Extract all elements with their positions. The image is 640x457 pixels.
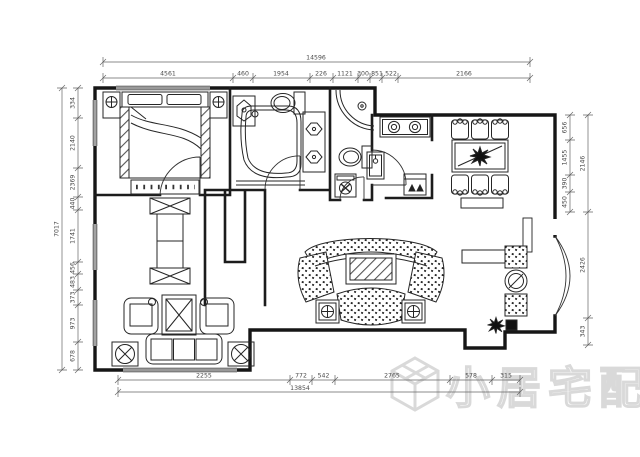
dim-label: 2765 <box>384 373 400 380</box>
dim-label: 1121 <box>337 71 353 78</box>
shower-head <box>358 102 366 110</box>
dim-label: 1741 <box>70 228 77 244</box>
bay-window-seating <box>488 246 528 334</box>
pillow <box>128 95 162 105</box>
wardrobe <box>150 198 190 284</box>
floor-plan-canvas: 小居宅配 <box>0 0 640 457</box>
bedroom-door-arc <box>160 157 200 195</box>
bottom-window <box>123 367 237 373</box>
armchair-left <box>124 298 158 334</box>
bathroom-1 <box>233 92 325 185</box>
dim-label: 678 <box>70 350 77 362</box>
bay-window <box>555 236 570 316</box>
dim-label: 1455 <box>562 150 569 166</box>
dim-label: 2166 <box>456 71 472 78</box>
dim-label: 315 <box>500 373 512 380</box>
dining-chairs-bottom <box>452 175 509 195</box>
dim-label: 2369 <box>70 175 77 191</box>
dimensions-right: 656 1455 390 450 2146 2426 343 <box>562 112 594 348</box>
basin <box>306 151 322 163</box>
dim-label: 772 <box>295 373 307 380</box>
dim-label: 13854 <box>290 385 310 392</box>
dimensions-left: 334 2140 2369 440 1741 456 483 373 973 6… <box>54 85 84 373</box>
bed-group <box>103 92 227 194</box>
dim-label: 7017 <box>54 221 61 237</box>
planter <box>506 320 517 330</box>
dim-label: 226 <box>315 71 327 78</box>
dim-label: 2426 <box>580 257 587 273</box>
dim-label: 14596 <box>306 55 326 62</box>
stool <box>505 294 527 316</box>
dim-label: 542 <box>318 373 330 380</box>
dim-label: 390 <box>562 178 569 190</box>
floor-plant <box>488 317 505 333</box>
dim-label: 440 <box>70 198 77 210</box>
bed <box>120 107 210 178</box>
dim-label: 483 <box>70 276 77 288</box>
dim-label: 2255 <box>196 373 212 380</box>
dim-label: 450 <box>562 196 569 208</box>
cube-logo-icon <box>392 358 438 410</box>
dining-chairs-top <box>452 119 509 139</box>
dim-label: 456 <box>70 262 77 274</box>
corner-shower <box>336 90 374 130</box>
dim-label: 1954 <box>273 71 289 78</box>
bathroom-2 <box>335 90 374 197</box>
sitting-area <box>112 295 254 366</box>
dim-label: 4561 <box>160 71 176 78</box>
fridge <box>404 174 426 195</box>
stool <box>505 246 527 268</box>
kitchen <box>367 117 430 195</box>
floor-plan-page: 小居宅配 <box>0 0 640 457</box>
dimensions-top: 14596 4561 460 1954 226 1121 300 851 522… <box>100 55 533 84</box>
dim-label: 656 <box>562 122 569 134</box>
dim-label: 373 <box>70 292 77 304</box>
watermark-text: 小居宅配 <box>446 363 640 414</box>
dim-label: 2140 <box>70 135 77 151</box>
dim-label: 578 <box>465 373 477 380</box>
basin <box>237 100 251 121</box>
bedroom-window <box>116 85 210 91</box>
watermark: 小居宅配 <box>392 358 640 414</box>
pillow <box>167 95 201 105</box>
dim-label: 460 <box>237 71 249 78</box>
balcony-door-leaf <box>551 219 559 235</box>
dim-label: 334 <box>70 97 77 109</box>
toilet-tank <box>294 92 305 114</box>
dim-label: 973 <box>70 318 77 330</box>
basin <box>306 123 322 135</box>
sideboard <box>461 198 503 208</box>
sofa-arm-right <box>408 252 444 302</box>
console-table <box>462 250 508 263</box>
dim-label: 851 <box>371 71 383 78</box>
living-room-sofa <box>298 239 444 326</box>
dim-label: 522 <box>385 71 397 78</box>
dim-label: 343 <box>580 326 587 338</box>
dim-label: 2146 <box>580 156 587 172</box>
sofa-front-seat <box>337 288 405 325</box>
sofa-arm-left <box>298 252 334 302</box>
dining-set <box>452 119 509 263</box>
dim-label: 300 <box>357 71 369 78</box>
